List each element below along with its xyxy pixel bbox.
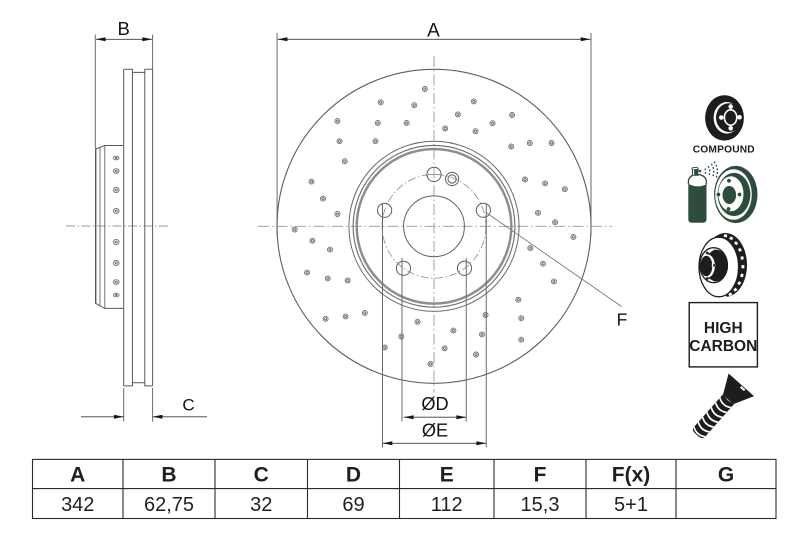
svg-text:CARBON: CARBON bbox=[689, 338, 757, 355]
svg-text:112: 112 bbox=[431, 494, 463, 516]
svg-text:62,75: 62,75 bbox=[144, 494, 194, 516]
svg-text:A: A bbox=[70, 464, 85, 487]
svg-text:342: 342 bbox=[61, 494, 94, 516]
svg-text:G: G bbox=[718, 464, 734, 487]
svg-text:D: D bbox=[346, 464, 361, 487]
svg-text:F: F bbox=[617, 310, 628, 330]
svg-text:B: B bbox=[118, 18, 130, 39]
svg-text:F(x): F(x) bbox=[612, 464, 651, 487]
svg-text:F: F bbox=[534, 464, 547, 487]
svg-text:A: A bbox=[427, 21, 440, 42]
svg-text:E: E bbox=[440, 464, 454, 487]
svg-text:69: 69 bbox=[342, 494, 364, 516]
svg-text:C: C bbox=[254, 464, 269, 487]
svg-text:ØE: ØE bbox=[422, 421, 448, 441]
svg-text:C: C bbox=[182, 396, 194, 415]
svg-text:HIGH: HIGH bbox=[704, 320, 743, 337]
svg-text:COMPOUND: COMPOUND bbox=[693, 144, 755, 155]
svg-text:32: 32 bbox=[250, 494, 272, 516]
svg-text:5+1: 5+1 bbox=[614, 494, 648, 516]
svg-text:15,3: 15,3 bbox=[521, 494, 560, 516]
svg-text:B: B bbox=[161, 464, 176, 487]
svg-text:ØD: ØD bbox=[421, 394, 448, 414]
